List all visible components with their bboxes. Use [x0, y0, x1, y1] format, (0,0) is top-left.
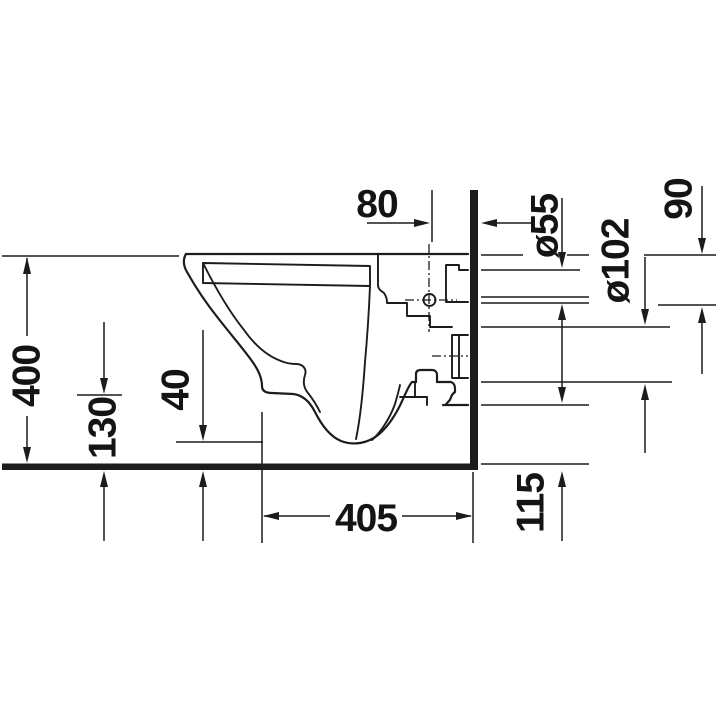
dim-405-label: 405 — [335, 497, 397, 540]
dim-130-arrow-down — [100, 378, 108, 394]
dim-40-arrow-up — [199, 471, 207, 487]
rim-seat-surface — [203, 263, 370, 286]
dim-o55-arrow-up — [558, 304, 566, 320]
dim-115-arrow-up — [558, 471, 566, 487]
toilet-outer-profile — [184, 254, 468, 443]
dim-40-label: 40 — [155, 369, 198, 411]
toilet-profile — [184, 244, 468, 443]
installation-wall-and-floor — [2, 190, 478, 470]
bowl-inner-back-wall — [356, 286, 370, 439]
supply-spigot — [446, 265, 468, 302]
dim-o102-label: ø102 — [595, 218, 638, 303]
dim-80-arrow-right — [414, 219, 430, 227]
dim-130-arrow-up — [100, 471, 108, 487]
dim-90-arrow-up — [698, 307, 706, 323]
dim-130-label: 130 — [82, 397, 125, 459]
flush-distributor-edges — [378, 254, 452, 327]
dim-supply-drop: 90 — [658, 178, 707, 374]
dim-115-arrow-down — [558, 387, 566, 403]
dim-o102-arrow-down — [641, 309, 649, 325]
dim-40-arrow-down — [199, 425, 207, 441]
dim-90-label: 90 — [658, 178, 701, 220]
dim-90-arrow-down — [698, 238, 706, 254]
technical-drawing-svg: 400 130 40 80 405 ø55 — [0, 0, 720, 720]
dim-outlet-pipe-diameter: ø102 — [595, 218, 650, 453]
dim-400-label: 400 — [6, 345, 49, 407]
dim-400-arrow-up — [23, 257, 31, 274]
dim-80-arrow-left — [481, 219, 497, 227]
dim-wall-offset: 80 — [356, 183, 532, 242]
dim-400-arrow-down — [23, 447, 31, 463]
dim-o102-arrow-up — [641, 384, 649, 400]
dim-405-arrow-left — [263, 512, 279, 520]
dim-depth: 405 — [262, 412, 473, 543]
dim-front-underside-height: 130 — [77, 322, 125, 541]
dim-supply-pipe-diameter: ø55 — [524, 194, 567, 388]
wall-section — [470, 190, 478, 470]
dim-80-label: 80 — [356, 183, 398, 226]
dim-115-label: 115 — [510, 473, 553, 533]
product-dimension-drawing: 400 130 40 80 405 ø55 — [0, 0, 720, 720]
floor-section — [2, 464, 478, 471]
dim-trap-clearance: 40 — [155, 330, 264, 541]
dim-o55-label: ø55 — [524, 194, 567, 259]
dim-405-arrow-right — [456, 512, 472, 520]
